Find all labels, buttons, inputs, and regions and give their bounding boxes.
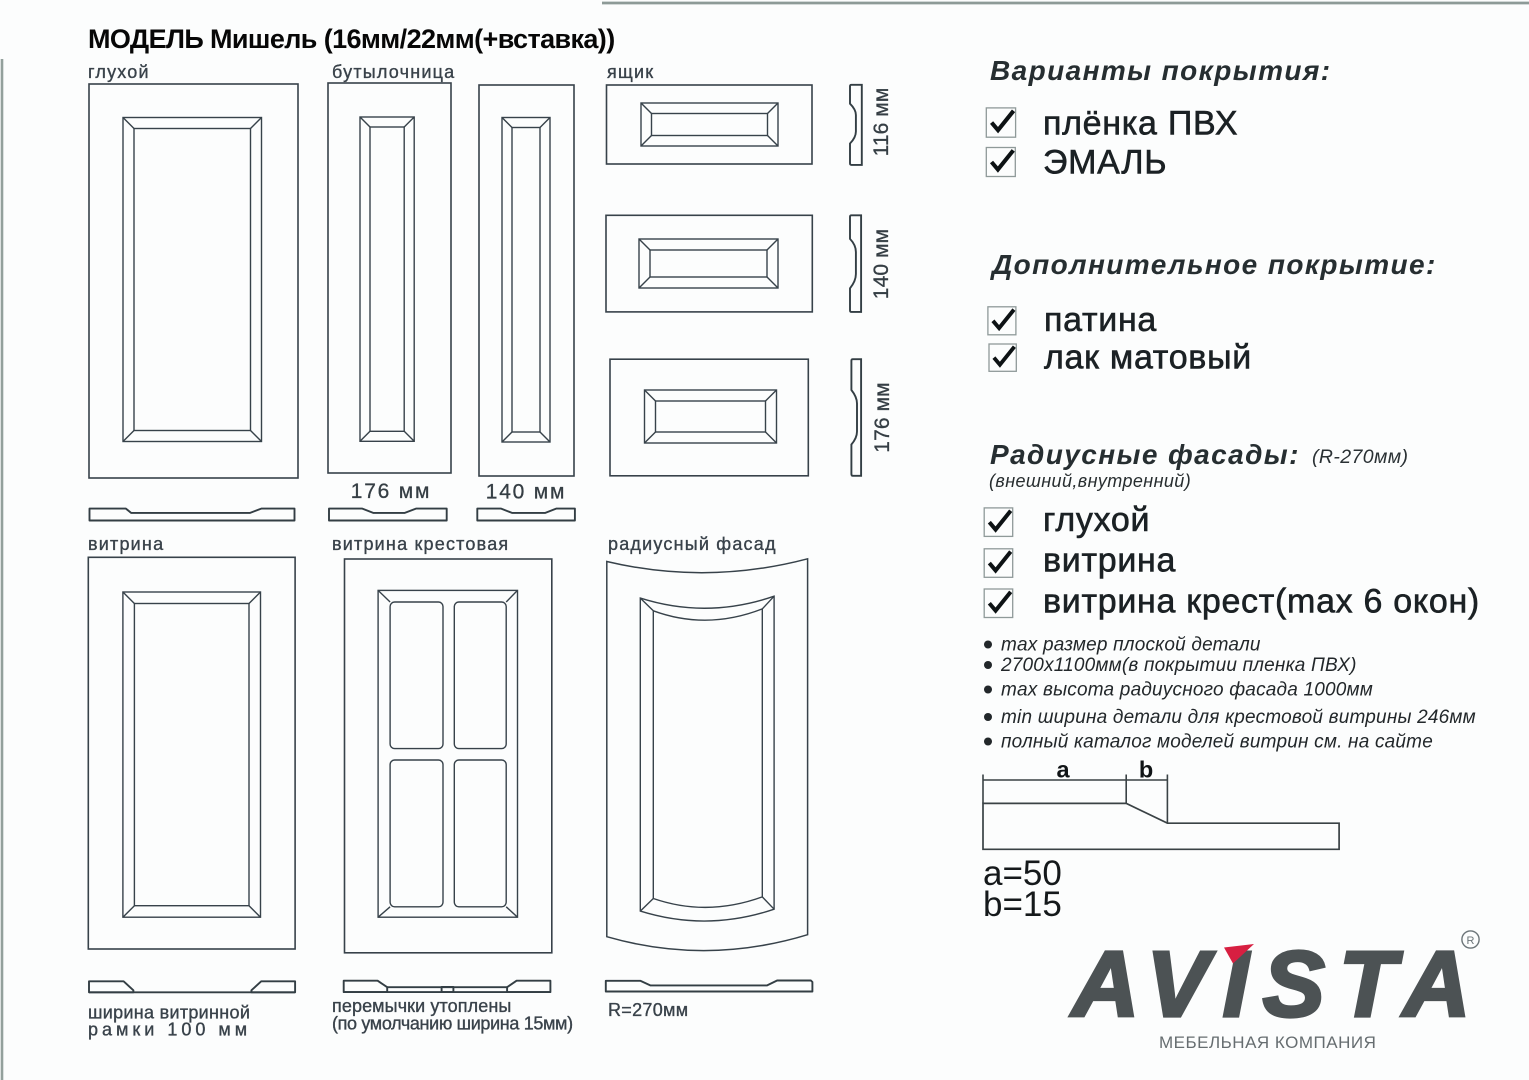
svg-text:a: a — [1056, 757, 1070, 783]
svg-text:176 мм: 176 мм — [871, 382, 894, 452]
svg-text:(по умолчанию ширина 15мм): (по умолчанию ширина 15мм) — [332, 1014, 573, 1034]
svg-text:плёнка ПВХ: плёнка ПВХ — [1043, 105, 1238, 143]
svg-text:МЕБЕЛЬНАЯ КОМПАНИЯ: МЕБЕЛЬНАЯ КОМПАНИЯ — [1159, 1033, 1376, 1052]
svg-text:радиусный фасад: радиусный фасад — [608, 534, 777, 554]
svg-text:глухой: глухой — [1043, 501, 1150, 539]
svg-text:116 мм: 116 мм — [870, 88, 893, 157]
svg-text:140 мм: 140 мм — [486, 481, 567, 504]
svg-text:витрина: витрина — [88, 534, 164, 554]
svg-text:R: R — [1467, 935, 1475, 947]
svg-text:МОДЕЛЬ Мишель (16мм/22мм(+вста: МОДЕЛЬ Мишель (16мм/22мм(+вставка)) — [88, 24, 615, 54]
svg-text:2700x1100мм(в покрытии пленка: 2700x1100мм(в покрытии пленка ПВХ) — [1000, 655, 1357, 676]
svg-text:(R-270мм): (R-270мм) — [1312, 446, 1408, 468]
svg-text:ЭМАЛЬ: ЭМАЛЬ — [1043, 144, 1167, 182]
svg-text:b: b — [1139, 757, 1153, 783]
svg-text:Варианты покрытия:: Варианты покрытия: — [990, 55, 1332, 86]
svg-text:глухой: глухой — [88, 62, 150, 82]
svg-text:витрина крестовая: витрина крестовая — [332, 534, 509, 554]
svg-text:витрина: витрина — [1043, 542, 1176, 580]
svg-text:патина: патина — [1044, 301, 1157, 339]
svg-text:140 мм: 140 мм — [870, 229, 893, 299]
svg-text:Дополнительное покрытие:: Дополнительное покрытие: — [990, 249, 1437, 280]
svg-text:ящик: ящик — [607, 62, 654, 82]
svg-text:AVISTA: AVISTA — [1070, 932, 1484, 1036]
svg-text:max высота радиусного фасада 1: max высота радиусного фасада 1000мм — [1001, 680, 1373, 701]
svg-text:(внешний,внутренний): (внешний,внутренний) — [989, 471, 1191, 491]
svg-text:176 мм: 176 мм — [351, 480, 432, 503]
svg-text:R=270мм: R=270мм — [608, 1000, 688, 1020]
svg-text:витрина крест(max 6 окон): витрина крест(max 6 окон) — [1043, 583, 1480, 621]
svg-text:бутылочница: бутылочница — [332, 62, 455, 82]
svg-text:min ширина детали для крестово: min ширина детали для крестовой витрины … — [1001, 707, 1476, 728]
svg-text:b=15: b=15 — [983, 885, 1062, 924]
svg-text:рамки 100 мм: рамки 100 мм — [88, 1020, 251, 1040]
svg-text:max размер плоской детали: max размер плоской детали — [1001, 635, 1261, 656]
svg-text:лак матовый: лак матовый — [1044, 339, 1252, 377]
svg-text:полный каталог моделей витрин: полный каталог моделей витрин см. на сай… — [1001, 732, 1433, 753]
svg-text:Радиусные фасады:: Радиусные фасады: — [990, 439, 1300, 470]
